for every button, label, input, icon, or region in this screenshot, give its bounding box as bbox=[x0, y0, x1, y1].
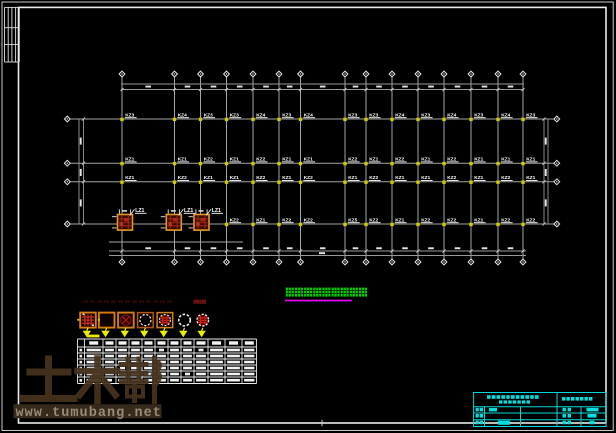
svg-text:www.tumubang.net: www.tumubang.net bbox=[16, 406, 162, 421]
